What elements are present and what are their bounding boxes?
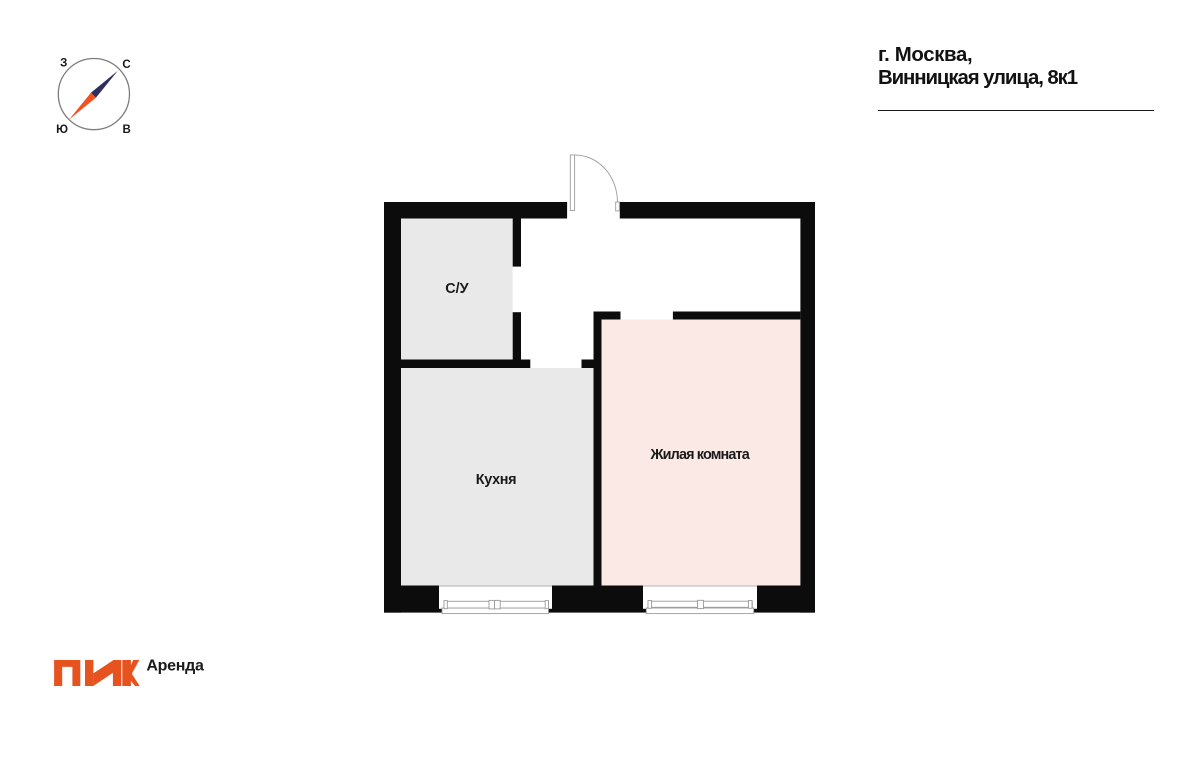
svg-text:Аренда: Аренда bbox=[146, 658, 204, 675]
svg-text:Кухня: Кухня bbox=[476, 472, 517, 488]
svg-text:Ю: Ю bbox=[56, 124, 68, 136]
svg-text:В: В bbox=[122, 124, 130, 136]
svg-text:С: С bbox=[122, 59, 130, 71]
svg-text:С/У: С/У bbox=[445, 281, 469, 297]
svg-text:Жилая комната: Жилая комната bbox=[650, 447, 751, 463]
svg-text:З: З bbox=[60, 58, 67, 70]
